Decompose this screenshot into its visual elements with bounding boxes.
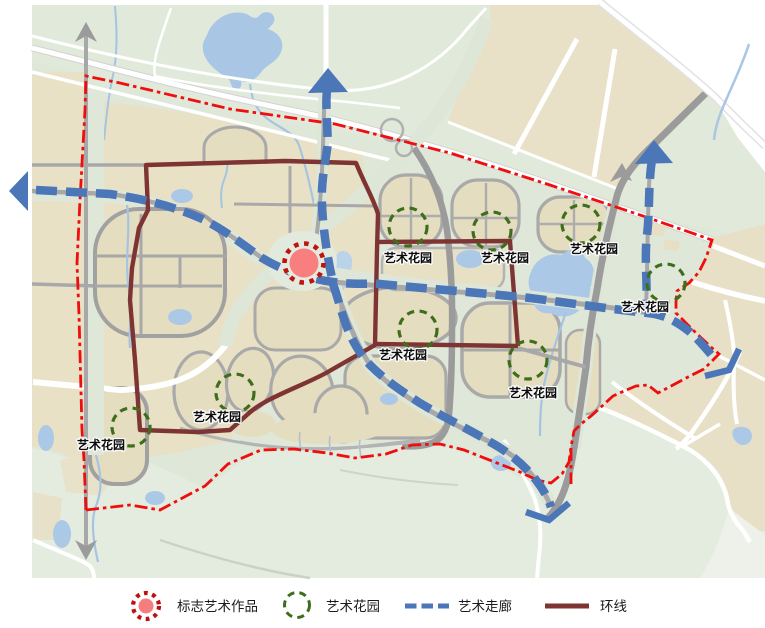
svg-text:艺术花园: 艺术花园: [481, 250, 529, 265]
svg-text:艺术花园: 艺术花园: [193, 409, 241, 424]
svg-text:艺术走廊: 艺术走廊: [458, 598, 512, 614]
svg-text:艺术花园: 艺术花园: [621, 299, 669, 314]
svg-text:标志艺术作品: 标志艺术作品: [177, 599, 258, 614]
svg-text:艺术花园: 艺术花园: [384, 250, 432, 265]
svg-text:艺术花园: 艺术花园: [379, 347, 427, 362]
svg-text:艺术花园: 艺术花园: [326, 599, 380, 614]
svg-text:艺术花园: 艺术花园: [509, 385, 557, 400]
svg-text:环线: 环线: [600, 599, 627, 614]
svg-text:艺术花园: 艺术花园: [570, 241, 618, 256]
svg-text:艺术花园: 艺术花园: [77, 437, 125, 452]
